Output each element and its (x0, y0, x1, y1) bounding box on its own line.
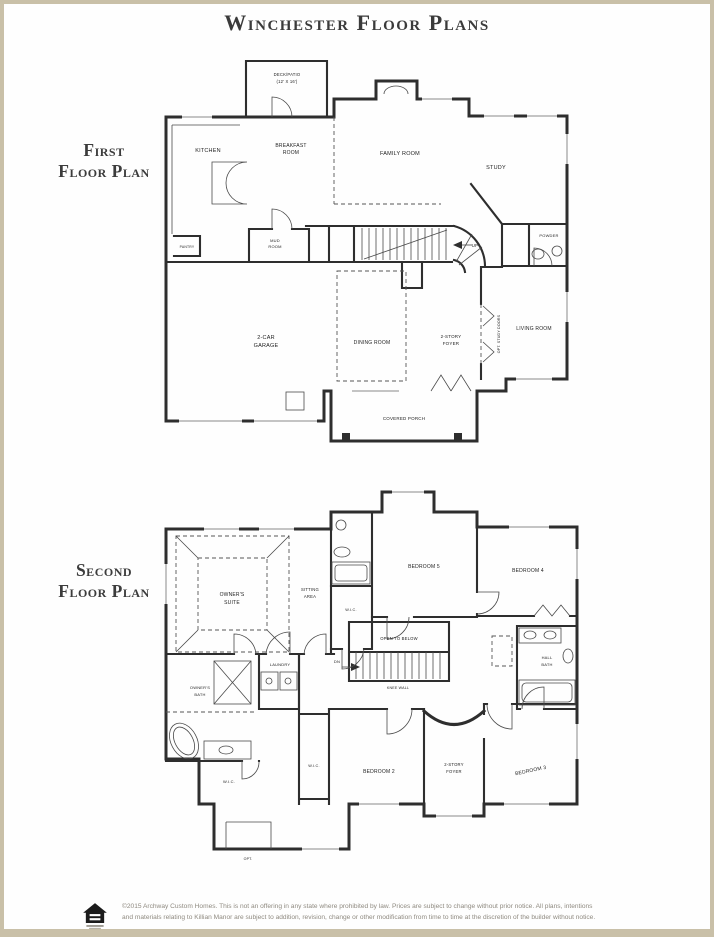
laundry-label: LAUNDRY (270, 662, 291, 667)
garage-label2: GARAGE (254, 343, 279, 349)
hall-bath-toilet (563, 649, 573, 663)
second-floor-plan: OWNER'S SUITE SITTING AREA BEDROOM 5 BED… (144, 482, 614, 882)
porch-post-left (342, 433, 350, 441)
bed5-bath-sink (334, 547, 350, 557)
deck-patio-size-label: (12' X 16') (276, 79, 297, 84)
bedroom4-label: BEDROOM 4 (512, 568, 544, 574)
first-floor-stairs (362, 228, 482, 265)
second-floor-heading-line1: Second (76, 560, 132, 580)
fireplace (384, 86, 408, 94)
disclaimer-text: ©2015 Archway Custom Homes. This is not … (122, 902, 595, 923)
powder-toilet (552, 246, 562, 256)
open-to-below-label: OPEN TO BELOW (380, 636, 418, 641)
hall-bath-door (522, 687, 544, 709)
breakfast-room-label2: ROOM (283, 150, 299, 156)
breakfast-family-dashed (334, 117, 441, 204)
washer (261, 672, 278, 690)
owners-tub-outer (164, 718, 205, 764)
deck-door (272, 97, 292, 117)
first-floor-heading-line1: First (83, 140, 124, 160)
second-floor-fixtures (164, 520, 575, 764)
deck-wall (246, 61, 327, 117)
hall-bath-label: HALL (542, 655, 553, 660)
foyer2-label2: FOYER (446, 769, 461, 774)
sitting-area-label2: AREA (304, 594, 316, 599)
first-floor-fixtures (172, 86, 562, 441)
owners-bath-label: OWNER'S (190, 685, 210, 690)
opt-nook-wall (226, 822, 271, 849)
dining-room-dashed (337, 271, 406, 381)
dryer (280, 672, 297, 690)
hall-bath-sink2 (544, 631, 556, 639)
living-room-label: LIVING ROOM (516, 326, 552, 332)
owners-bath-door (234, 634, 256, 654)
two-story-foyer-label2: FOYER (443, 341, 460, 346)
washer-mark (266, 678, 272, 684)
bedroom2-label: BEDROOM 2 (363, 769, 395, 775)
garage-label: 2-CAR (257, 335, 275, 341)
laundry-door (266, 632, 290, 654)
bedroom4-closet-bifold (534, 605, 570, 616)
deck-patio-label: DECK/PATIO (274, 72, 301, 77)
dining-room-label: DINING ROOM (354, 340, 391, 346)
owners-suite-label: OWNER'S (220, 592, 245, 598)
footer: ©2015 Archway Custom Homes. This is not … (82, 902, 662, 930)
page-title: Winchester Floor Plans (4, 10, 710, 36)
bedroom3-label: BEDROOM 3 (515, 765, 547, 777)
window-marks (179, 99, 567, 421)
front-double-door (431, 375, 471, 391)
second-floor-heading-line2: Floor Plan (58, 581, 149, 601)
stair-diagonal (364, 230, 447, 259)
owners-vanity (204, 741, 251, 759)
dryer-mark (285, 678, 291, 684)
stair-treads (356, 652, 440, 679)
study-label: STUDY (486, 165, 506, 171)
owners-sink (219, 746, 233, 754)
kitchen-island (212, 162, 247, 204)
kitchen-counter (172, 125, 240, 234)
dn-label: DN (334, 659, 340, 664)
second-floor-dashed (166, 536, 512, 712)
covered-porch-label: COVERED PORCH (383, 416, 425, 421)
first-floor-doors (272, 97, 552, 391)
up-label: UP (472, 243, 479, 248)
first-floor-plan: DECK/PATIO (12' X 16') KITCHEN BREAKFAST… (144, 54, 614, 454)
first-floor-windows (179, 99, 567, 421)
hall-bath-vanity (519, 628, 561, 643)
floor-plan-sheet: Winchester Floor Plans First Floor Plan (0, 0, 714, 937)
equal-housing-logo-icon (82, 902, 108, 930)
breakfast-room-label: BREAKFAST (275, 143, 306, 149)
up-arrow-head (453, 241, 462, 249)
second-floor-stairs (342, 652, 440, 679)
bedroom5-label: BEDROOM 5 (408, 564, 440, 570)
wic-bedroom5-label: W.I.C. (345, 608, 357, 612)
bedroom4-closet-dashed (492, 636, 512, 666)
bed5-bath-toilet (336, 520, 346, 530)
stair-fan (456, 234, 482, 265)
opt-study-doors-zigzag (483, 306, 494, 362)
disclaimer-line1: ©2015 Archway Custom Homes. This is not … (122, 902, 595, 913)
pantry-label: PANTRY (180, 245, 195, 249)
opt-study-doors-label: OPT. STUDY DOORS (497, 314, 501, 353)
first-floor-heading-line2: Floor Plan (58, 161, 149, 181)
foyer-curved-wall (424, 711, 484, 725)
water-heater (286, 392, 304, 410)
hall-bath-label2: BATH (541, 662, 552, 667)
disclaimer-line2: and materials relating to Killian Manor … (122, 913, 595, 924)
kitchen-label: KITCHEN (195, 148, 221, 154)
family-room-label: FAMILY ROOM (380, 151, 420, 157)
study-powder-wall (502, 224, 567, 266)
bedroom3-door (487, 704, 512, 729)
opt-label: OPT. (244, 857, 253, 861)
bedroom4-door (477, 592, 499, 614)
powder-label: POWDER (539, 233, 558, 238)
owners-shower-x (214, 661, 251, 704)
owners-suite-label2: SUITE (224, 600, 240, 606)
foyer2-label: 2-STORY (444, 762, 463, 767)
owners-bath-label2: BATH (194, 692, 205, 697)
hall-wic-wall (299, 654, 329, 804)
wic-owners-door (242, 761, 259, 779)
sitting-area-label: SITTING (301, 587, 319, 592)
stair-curve-wall (454, 226, 485, 272)
two-story-foyer-label: 2-STORY (441, 334, 462, 339)
mud-room-label: MUD (270, 238, 280, 243)
hall-bath-tub (519, 680, 575, 705)
bed5-bath-tub-inner (335, 565, 367, 581)
second-floor-walls (166, 492, 577, 849)
study-foyer-diagonal-wall (471, 184, 502, 224)
knee-wall-label: KNEE WALL (387, 686, 409, 690)
wic-owners-label: W.I.C. (223, 779, 235, 784)
mud-room-label2: ROOM (268, 244, 281, 249)
hall-bath-sink1 (524, 631, 536, 639)
mud-room-door (272, 209, 292, 229)
owners-suite-door (304, 634, 326, 654)
wic-bedroom2-label: W.I.C. (308, 764, 320, 768)
bedroom2-door (387, 709, 412, 734)
porch-post-right (454, 433, 462, 441)
owners-tub-inner (169, 724, 199, 759)
